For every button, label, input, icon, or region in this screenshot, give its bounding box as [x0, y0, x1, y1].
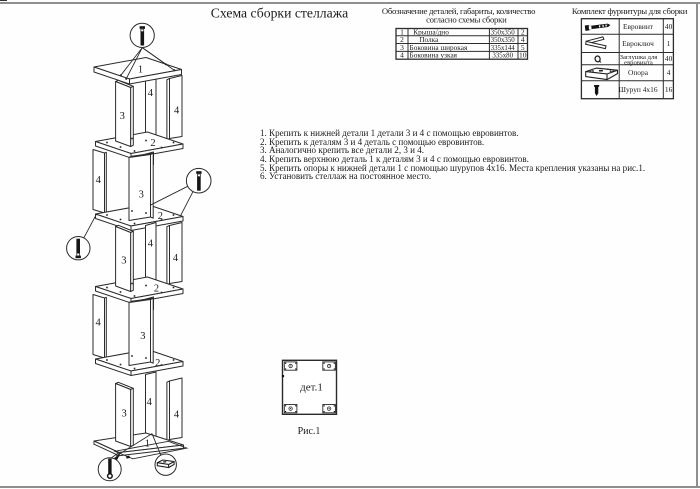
svg-text:2: 2 — [158, 211, 163, 222]
svg-text:4: 4 — [400, 51, 404, 60]
svg-text:3: 3 — [121, 408, 126, 419]
svg-text:3: 3 — [140, 331, 145, 342]
svg-text:40: 40 — [665, 22, 673, 31]
svg-text:3: 3 — [120, 111, 125, 122]
svg-text:4: 4 — [96, 175, 102, 186]
svg-text:4: 4 — [95, 317, 101, 328]
svg-text:Евровинт: Евровинт — [623, 22, 654, 31]
svg-text:Комплект фурнитуры для сборки: Комплект фурнитуры для сборки — [572, 6, 688, 16]
svg-text:2: 2 — [154, 284, 159, 295]
svg-text:Опора: Опора — [628, 68, 649, 77]
svg-text:Боковина узкая: Боковина узкая — [410, 51, 458, 60]
svg-text:Евроключ: Евроключ — [622, 39, 654, 48]
svg-text:16: 16 — [665, 85, 673, 94]
svg-text:3: 3 — [121, 256, 126, 267]
svg-text:согласно схемы сборки: согласно схемы сборки — [426, 15, 507, 25]
svg-text:1: 1 — [138, 65, 143, 76]
svg-text:3: 3 — [139, 190, 144, 201]
svg-text:4: 4 — [147, 397, 153, 408]
svg-text:335х144: 335х144 — [491, 45, 516, 52]
svg-text:4: 4 — [148, 88, 154, 99]
svg-text:4: 4 — [174, 105, 180, 116]
svg-text:дет.1: дет.1 — [300, 382, 323, 394]
svg-text:1: 1 — [667, 39, 671, 48]
svg-text:350х350: 350х350 — [491, 37, 516, 44]
svg-text:40: 40 — [665, 54, 673, 63]
svg-text:4: 4 — [148, 239, 154, 250]
svg-text:евровинта: евровинта — [624, 60, 653, 67]
svg-text:10: 10 — [519, 51, 527, 60]
svg-text:Шуруп 4х16: Шуруп 4х16 — [618, 85, 657, 94]
svg-text:2: 2 — [150, 138, 155, 149]
svg-text:350х350: 350х350 — [491, 30, 516, 37]
svg-text:4: 4 — [667, 68, 671, 77]
svg-text:4: 4 — [173, 253, 179, 264]
svg-text:4: 4 — [174, 409, 180, 420]
svg-text:335х80: 335х80 — [492, 53, 513, 60]
svg-text:2: 2 — [155, 358, 160, 369]
svg-text:1: 1 — [145, 438, 150, 449]
